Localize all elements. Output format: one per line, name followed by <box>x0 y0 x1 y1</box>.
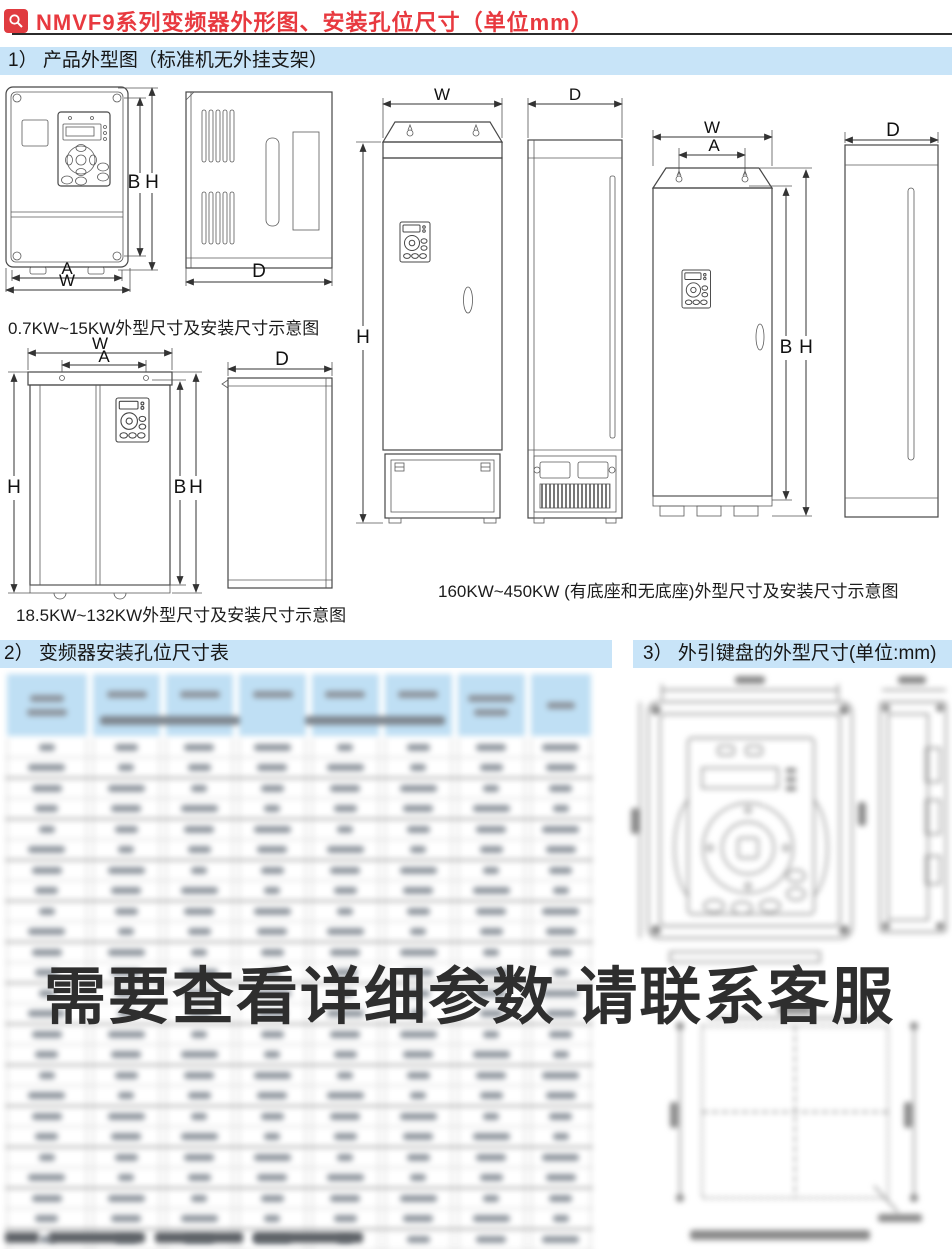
dim-label: H <box>7 477 21 498</box>
dim-label: B <box>128 172 141 193</box>
title-divider <box>12 33 952 35</box>
drawing-cabinet-nobase-side: D <box>845 120 938 517</box>
table-row-blurred <box>5 1148 593 1168</box>
caption-medium-range: 18.5KW~132KW外型尺寸及安装尺寸示意图 <box>16 601 346 626</box>
dim-label: H <box>145 172 159 193</box>
table-row-blurred <box>5 1066 593 1086</box>
table-row-blurred <box>5 738 593 758</box>
product-spec-page: NMVF9系列变频器外形图、安装孔位尺寸（单位mm） 1） 产品外型图（标准机无… <box>0 0 952 1249</box>
dim-label: W <box>704 118 720 137</box>
dim-label: A <box>708 136 720 155</box>
table-row-blurred <box>5 820 593 840</box>
table-row-blurred <box>5 902 593 922</box>
drawing-cabinet-base-side: D <box>528 85 622 523</box>
table-header-blurred <box>5 674 593 736</box>
dim-label: H <box>799 337 813 358</box>
table-row-blurred <box>5 840 593 861</box>
table-row-blurred <box>5 758 593 779</box>
dim-label: A <box>98 347 110 366</box>
magnifier-icon <box>4 9 28 33</box>
table-row-blurred <box>5 1168 593 1189</box>
dim-label: B <box>780 337 793 358</box>
caption-large-range: 160KW~450KW (有底座和无底座)外型尺寸及安装尺寸示意图 <box>438 577 898 602</box>
drawing-cabinet-nobase-front: W A B H <box>653 118 813 516</box>
dim-label: D <box>252 261 266 282</box>
table-footnote-blurred <box>5 1232 435 1245</box>
table-row-blurred <box>5 1086 593 1107</box>
drawing-cabinet-base-front: W H <box>356 85 502 523</box>
section-1-heading: 1） 产品外型图（标准机无外挂支架） <box>0 47 952 75</box>
dim-label: H <box>356 327 370 348</box>
table-row-blurred <box>5 779 593 799</box>
dim-label: W <box>434 85 450 104</box>
table-row-blurred <box>5 1189 593 1209</box>
dim-label: B <box>174 477 187 498</box>
dim-label: W <box>59 271 75 290</box>
section-2-heading: 2） 变频器安装孔位尺寸表 <box>0 640 612 668</box>
table-row-blurred <box>5 881 593 902</box>
table-row-blurred <box>5 1209 593 1230</box>
table-row-blurred <box>5 1045 593 1066</box>
table-row-blurred <box>5 799 593 820</box>
dim-label: D <box>886 120 900 141</box>
drawing-medium-drive-front: W A H B H <box>7 334 203 599</box>
dim-label: D <box>569 85 581 104</box>
table-row-blurred <box>5 861 593 881</box>
section-3-heading: 3） 外引键盘的外型尺寸(单位:mm) <box>633 640 952 668</box>
caption-small-range: 0.7KW~15KW外型尺寸及安装尺寸示意图 <box>8 314 319 339</box>
outline-drawings: B H A W D <box>0 80 952 640</box>
table-row-blurred <box>5 1127 593 1148</box>
dim-label: D <box>275 349 289 370</box>
watermark-text: 需要查看详细参数 请联系客服 <box>44 946 895 1036</box>
table-row-blurred <box>5 922 593 943</box>
drawing-medium-drive-side: D <box>222 349 332 588</box>
table-row-blurred <box>5 1107 593 1127</box>
dim-label: H <box>189 477 203 498</box>
drawing-small-drive-front: B H A W <box>6 87 159 292</box>
drawing-small-drive-side: D <box>186 92 332 286</box>
